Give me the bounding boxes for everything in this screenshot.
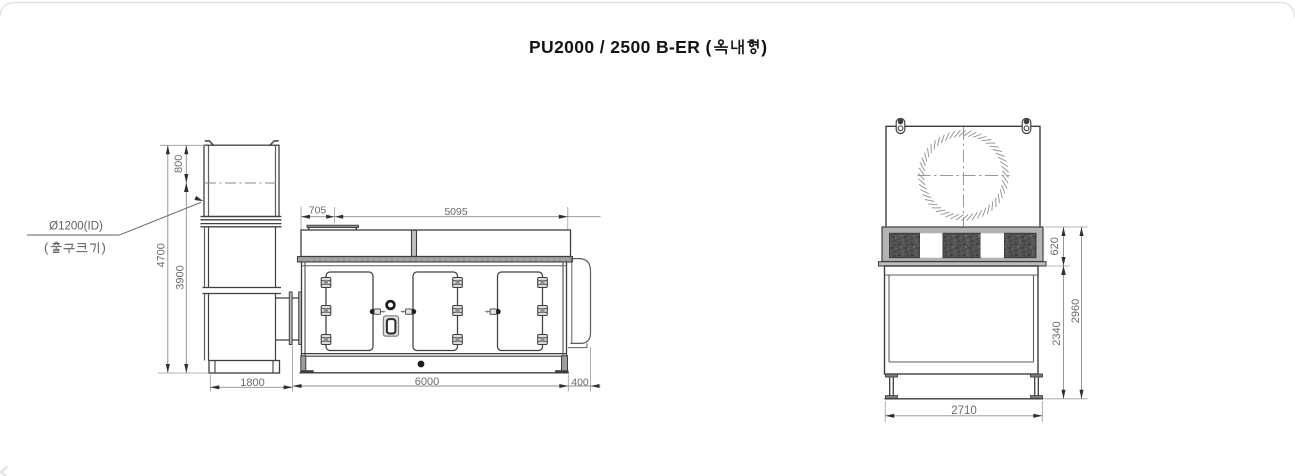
svg-text:620: 620 — [1049, 237, 1061, 255]
svg-text:2710: 2710 — [951, 405, 977, 417]
svg-text:2340: 2340 — [1051, 321, 1063, 345]
svg-text:PU2000 / 2500 B-ER (: PU2000 / 2500 B-ER ( — [529, 37, 712, 57]
svg-text:1800: 1800 — [240, 377, 264, 389]
svg-text:5095: 5095 — [444, 206, 468, 218]
svg-text:6000: 6000 — [415, 376, 439, 388]
svg-text:800: 800 — [173, 155, 185, 173]
svg-text:4700: 4700 — [156, 243, 168, 267]
svg-text:400: 400 — [571, 376, 589, 388]
svg-text:): ) — [761, 37, 767, 57]
svg-text:): ) — [102, 240, 106, 255]
svg-text:3900: 3900 — [175, 265, 187, 289]
svg-text:(: ( — [44, 240, 49, 255]
svg-text:Ø1200(ID): Ø1200(ID) — [49, 221, 103, 233]
svg-text:2960: 2960 — [1070, 299, 1082, 323]
svg-text:705: 705 — [309, 205, 327, 217]
